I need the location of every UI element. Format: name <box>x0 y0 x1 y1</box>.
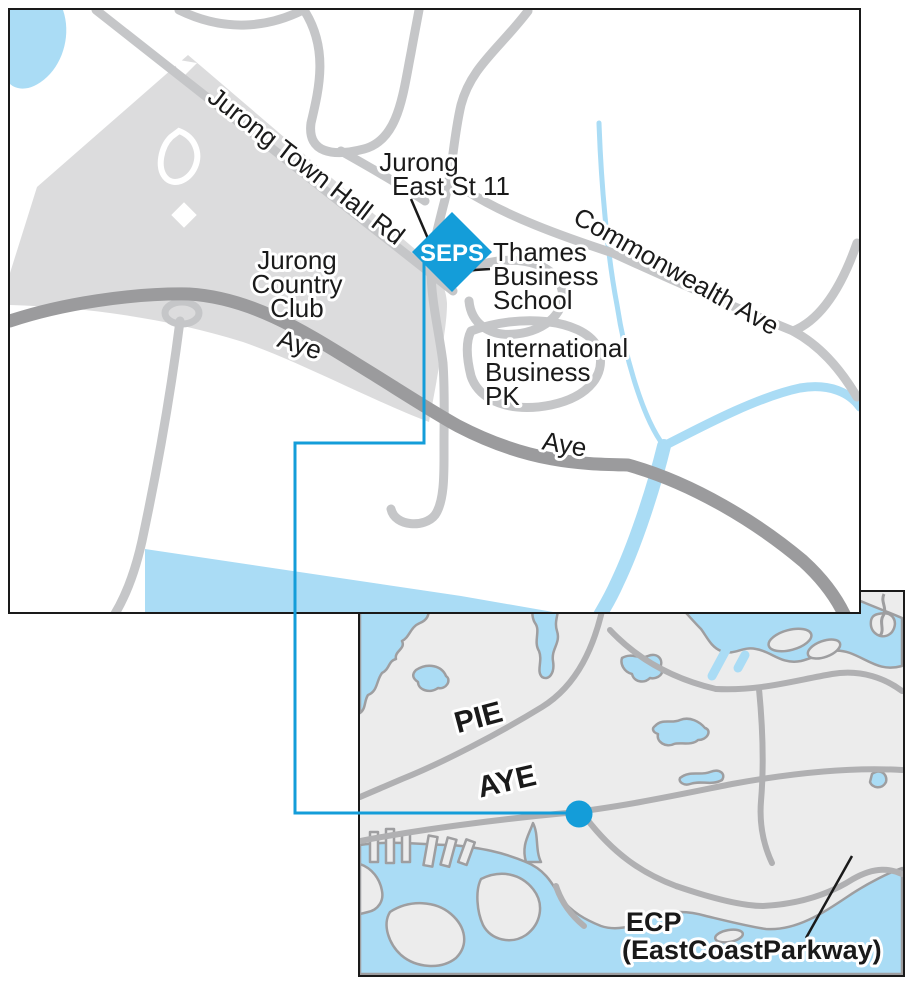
road-loop-north <box>304 10 419 153</box>
pier-3 <box>402 834 410 862</box>
main-map: Jurong Town Hall Rd Commonwealth Ave Aye… <box>8 8 861 614</box>
water-lake-east-small <box>870 772 886 788</box>
inset-map: PIE AYE ECP (EastCoastParkway) <box>358 590 905 977</box>
water-finger-2 <box>738 655 745 668</box>
road-topleft-curl <box>179 10 303 25</box>
label-thames-line3: School <box>493 285 573 315</box>
label-ibp-line3: PK <box>485 381 520 411</box>
label-jurong-east-line2: East St 11 <box>392 171 510 201</box>
river-northeast-branch <box>664 387 859 446</box>
label-country-club-line3: Club <box>270 293 323 323</box>
thames-pointer-line <box>459 269 490 271</box>
label-ecp-line2: (EastCoastParkway) <box>622 935 882 965</box>
inset-map-canvas: PIE AYE ECP (EastCoastParkway) <box>360 592 903 975</box>
label-ecp-line1: ECP <box>626 907 682 937</box>
map-figure: PIE AYE ECP (EastCoastParkway) <box>0 0 914 982</box>
water-wedge-bottomleft <box>145 549 576 612</box>
main-map-canvas: Jurong Town Hall Rd Commonwealth Ave Aye… <box>10 10 859 612</box>
label-commonwealth-ave: Commonwealth Ave <box>569 201 785 341</box>
road-commonwealth-fork-north <box>793 243 857 331</box>
river-stream <box>599 123 664 446</box>
water-pond-topleft <box>10 10 66 89</box>
